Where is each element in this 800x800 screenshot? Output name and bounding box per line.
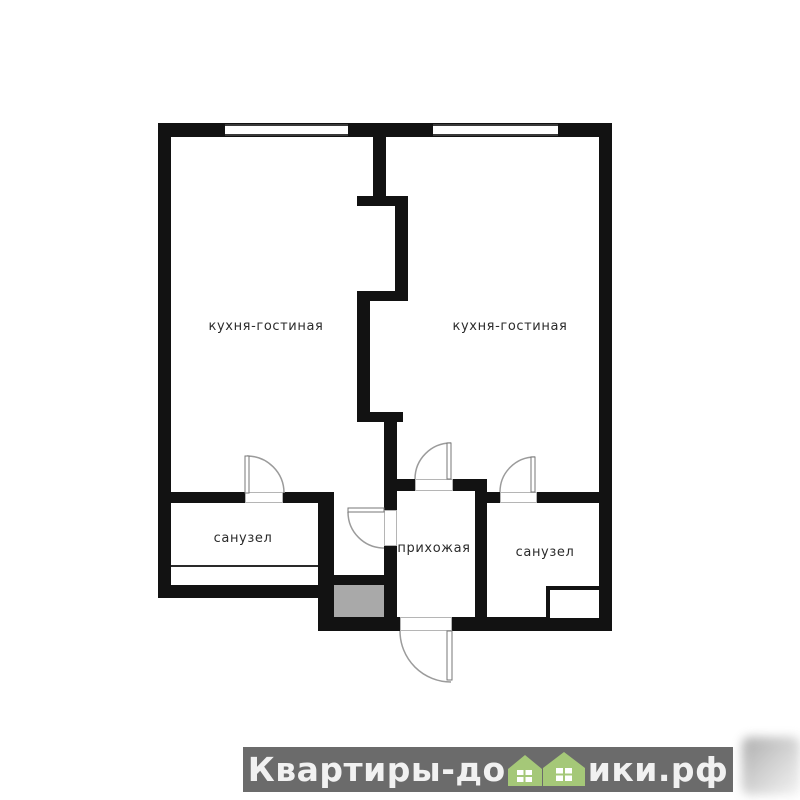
door-leaf-hallway-top: [447, 443, 451, 479]
door-arc-bathroom-left: [247, 456, 284, 493]
room-label-hallway: прихожая: [395, 541, 473, 556]
hallway-right-wall: [475, 479, 487, 631]
door-swings-layer: [0, 0, 800, 800]
wall-left: [158, 123, 171, 598]
door-leaf-bathroom-left: [245, 456, 249, 493]
divider-wall-v1: [373, 137, 386, 203]
bathroom-left-fixture-line: [171, 565, 318, 567]
divider-wall-v2: [395, 196, 408, 301]
watermark-text: Квартиры-до ики.рф: [248, 752, 729, 788]
shaft-top-wall: [330, 575, 384, 585]
bathroom-right-niche: [546, 586, 599, 618]
door-arc-alcove: [348, 512, 384, 548]
bathroom-right-top-wall-b: [537, 492, 599, 503]
door-leaf-bathroom-right: [531, 457, 535, 492]
room-label-kitchen-living-right: кухня-гостиная: [410, 319, 610, 334]
wall-right: [599, 123, 612, 631]
room-label-bathroom-left: санузел: [170, 531, 316, 546]
window-left: [225, 124, 348, 136]
door-arc-bathroom-right: [500, 457, 535, 492]
wall-bottom-left-section: [158, 585, 334, 598]
door-opening-entrance: [400, 617, 452, 631]
watermark-prefix: Квартиры-до: [248, 753, 506, 786]
door-opening-bathroom-right: [500, 492, 537, 503]
bathroom-right-top-wall-a: [487, 492, 500, 503]
door-opening-hallway-top: [415, 479, 453, 491]
hallway-left-wall-upper: [384, 412, 397, 511]
watermark-bar: Квартиры-до ики.рф: [243, 747, 733, 792]
door-opening-bathroom-left: [245, 492, 283, 503]
room-label-kitchen-living-left: кухня-гостиная: [166, 319, 366, 334]
door-arc-entrance: [400, 631, 451, 682]
bathroom-left-top-wall-a: [158, 492, 245, 503]
green-houses-icon: [507, 752, 587, 788]
bathroom-left-right-wall: [318, 492, 334, 631]
divider-wall-v3: [357, 291, 370, 422]
hallway-left-wall-lower: [384, 546, 397, 631]
door-leaf-alcove: [348, 508, 384, 512]
ventilation-shaft: [334, 585, 384, 617]
window-right: [433, 124, 558, 136]
watermark-artifact-blob: [742, 737, 800, 795]
door-arc-hallway-top: [415, 443, 451, 479]
door-leaf-entrance: [447, 631, 452, 680]
room-label-bathroom-right: санузел: [492, 545, 598, 560]
watermark-suffix: ики.рф: [588, 753, 729, 786]
floorplan-canvas: кухня-гостиная кухня-гостиная санузел пр…: [0, 0, 800, 800]
hallway-top-wall-a: [384, 479, 415, 491]
